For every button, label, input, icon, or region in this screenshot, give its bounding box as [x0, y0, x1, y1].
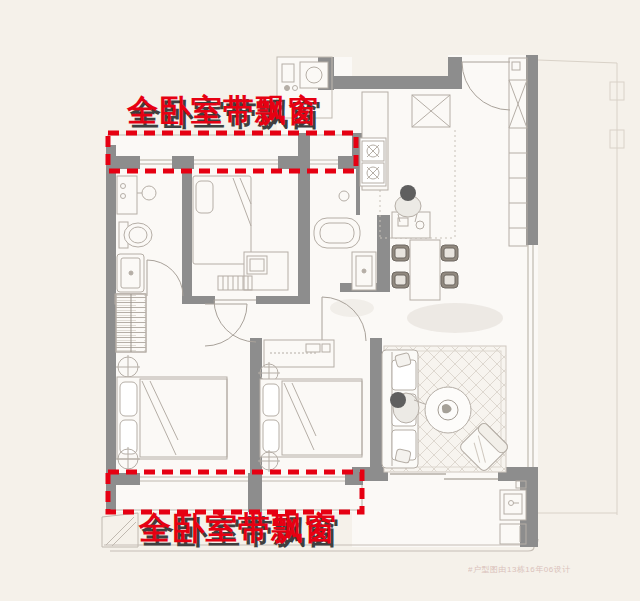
- stove-icon: [360, 138, 386, 186]
- shower-icon: [117, 254, 144, 292]
- dining-table: [410, 240, 440, 300]
- shower2-icon: [352, 252, 376, 290]
- living-room: [382, 346, 509, 472]
- throw-pillow: [395, 449, 411, 464]
- double-bed-icon: [117, 377, 227, 459]
- ac-platform: [102, 513, 138, 547]
- adjacent-structure-lines: [538, 60, 624, 515]
- single-bed-icon: [193, 176, 251, 264]
- bathtub-icon: [314, 218, 360, 248]
- toilet-icon: [119, 222, 152, 248]
- floor-plan-canvas: 全卧室带飘窗 全卧室带飘窗 #户型图由13栋16年06设计: [0, 0, 640, 601]
- dresser: [264, 340, 334, 367]
- fridge-icon: [412, 95, 450, 127]
- annotation-bottom: 全卧室带飘窗: [139, 507, 337, 551]
- coffee-table: [425, 387, 471, 433]
- double-bed-icon: [260, 379, 362, 457]
- annotation-top: 全卧室带飘窗: [127, 90, 319, 132]
- wardrobe: [116, 294, 146, 352]
- desk-icon: [244, 252, 288, 290]
- watermark: #户型图由13栋16年06设计: [468, 564, 571, 575]
